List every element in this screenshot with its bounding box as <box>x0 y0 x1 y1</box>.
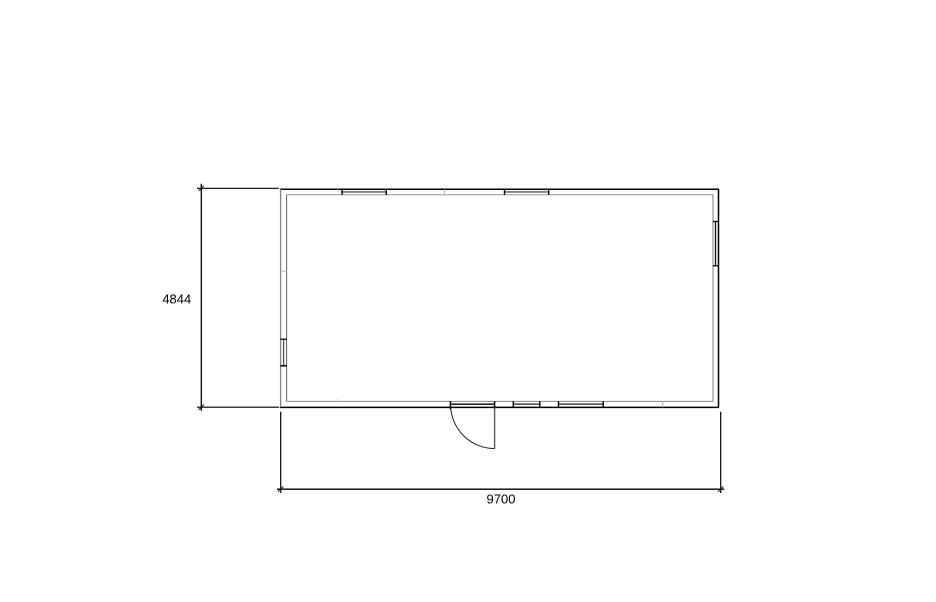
svg-text:9700: 9700 <box>487 491 516 506</box>
svg-text:4844: 4844 <box>162 292 191 307</box>
